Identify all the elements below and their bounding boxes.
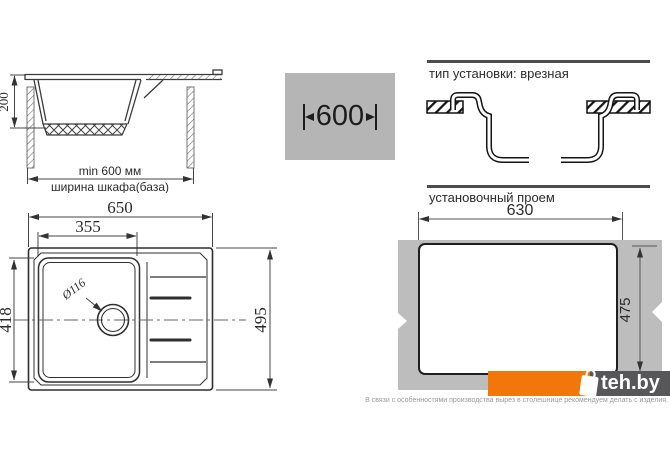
divider-middle xyxy=(427,185,650,188)
dim-650-lines xyxy=(29,213,213,247)
drainboard-hatch xyxy=(146,75,221,80)
sink-spec-sheet: 200 min 600 мм ширина шкафа(база) 600 ти… xyxy=(0,0,670,471)
production-note: В связи с особенностями производства выр… xyxy=(340,397,668,404)
sink-profile xyxy=(453,95,637,160)
cutout-opening xyxy=(418,243,618,375)
countertop-sections xyxy=(427,101,650,113)
drain-leader-line xyxy=(86,298,102,311)
cabinet-width-badge: 600 xyxy=(285,73,395,160)
break-notch-left xyxy=(398,313,407,329)
plan-overall-depth: 495 xyxy=(251,307,270,333)
cabinet-min-width-label: min 600 мм xyxy=(79,164,142,178)
cabinet-depth-label: 200 xyxy=(0,92,11,112)
dimension-tick-right xyxy=(375,104,377,130)
opening-depth-value: 475 xyxy=(617,297,634,322)
divider-top xyxy=(427,60,650,63)
arrow-left-icon xyxy=(305,113,314,121)
plan-bowl-width: 355 xyxy=(75,217,101,236)
badge-width-value: 600 xyxy=(316,102,364,131)
plan-bowl-depth: 418 xyxy=(0,307,15,333)
drain-diameter-label: Ø116 xyxy=(58,275,88,303)
cabinet-section-drawing: 200 min 600 мм ширина шкафа(база) xyxy=(0,58,230,193)
plan-view-drawing: 650 355 Ø116 418 xyxy=(0,192,290,407)
logo-orange-block xyxy=(488,371,590,396)
arrow-right-icon xyxy=(366,113,375,121)
installation-type-title: тип установки: врезная xyxy=(429,66,569,81)
sink-plan-outline xyxy=(29,248,213,390)
inset-mount-drawing xyxy=(425,88,665,178)
plan-overall-width: 650 xyxy=(107,198,133,217)
bowl-bottom-crosshatch xyxy=(43,124,127,135)
shopping-bag-icon xyxy=(576,366,602,398)
opening-depth-dimension: 475 xyxy=(615,240,665,380)
logo-text: teh.by xyxy=(601,371,660,396)
